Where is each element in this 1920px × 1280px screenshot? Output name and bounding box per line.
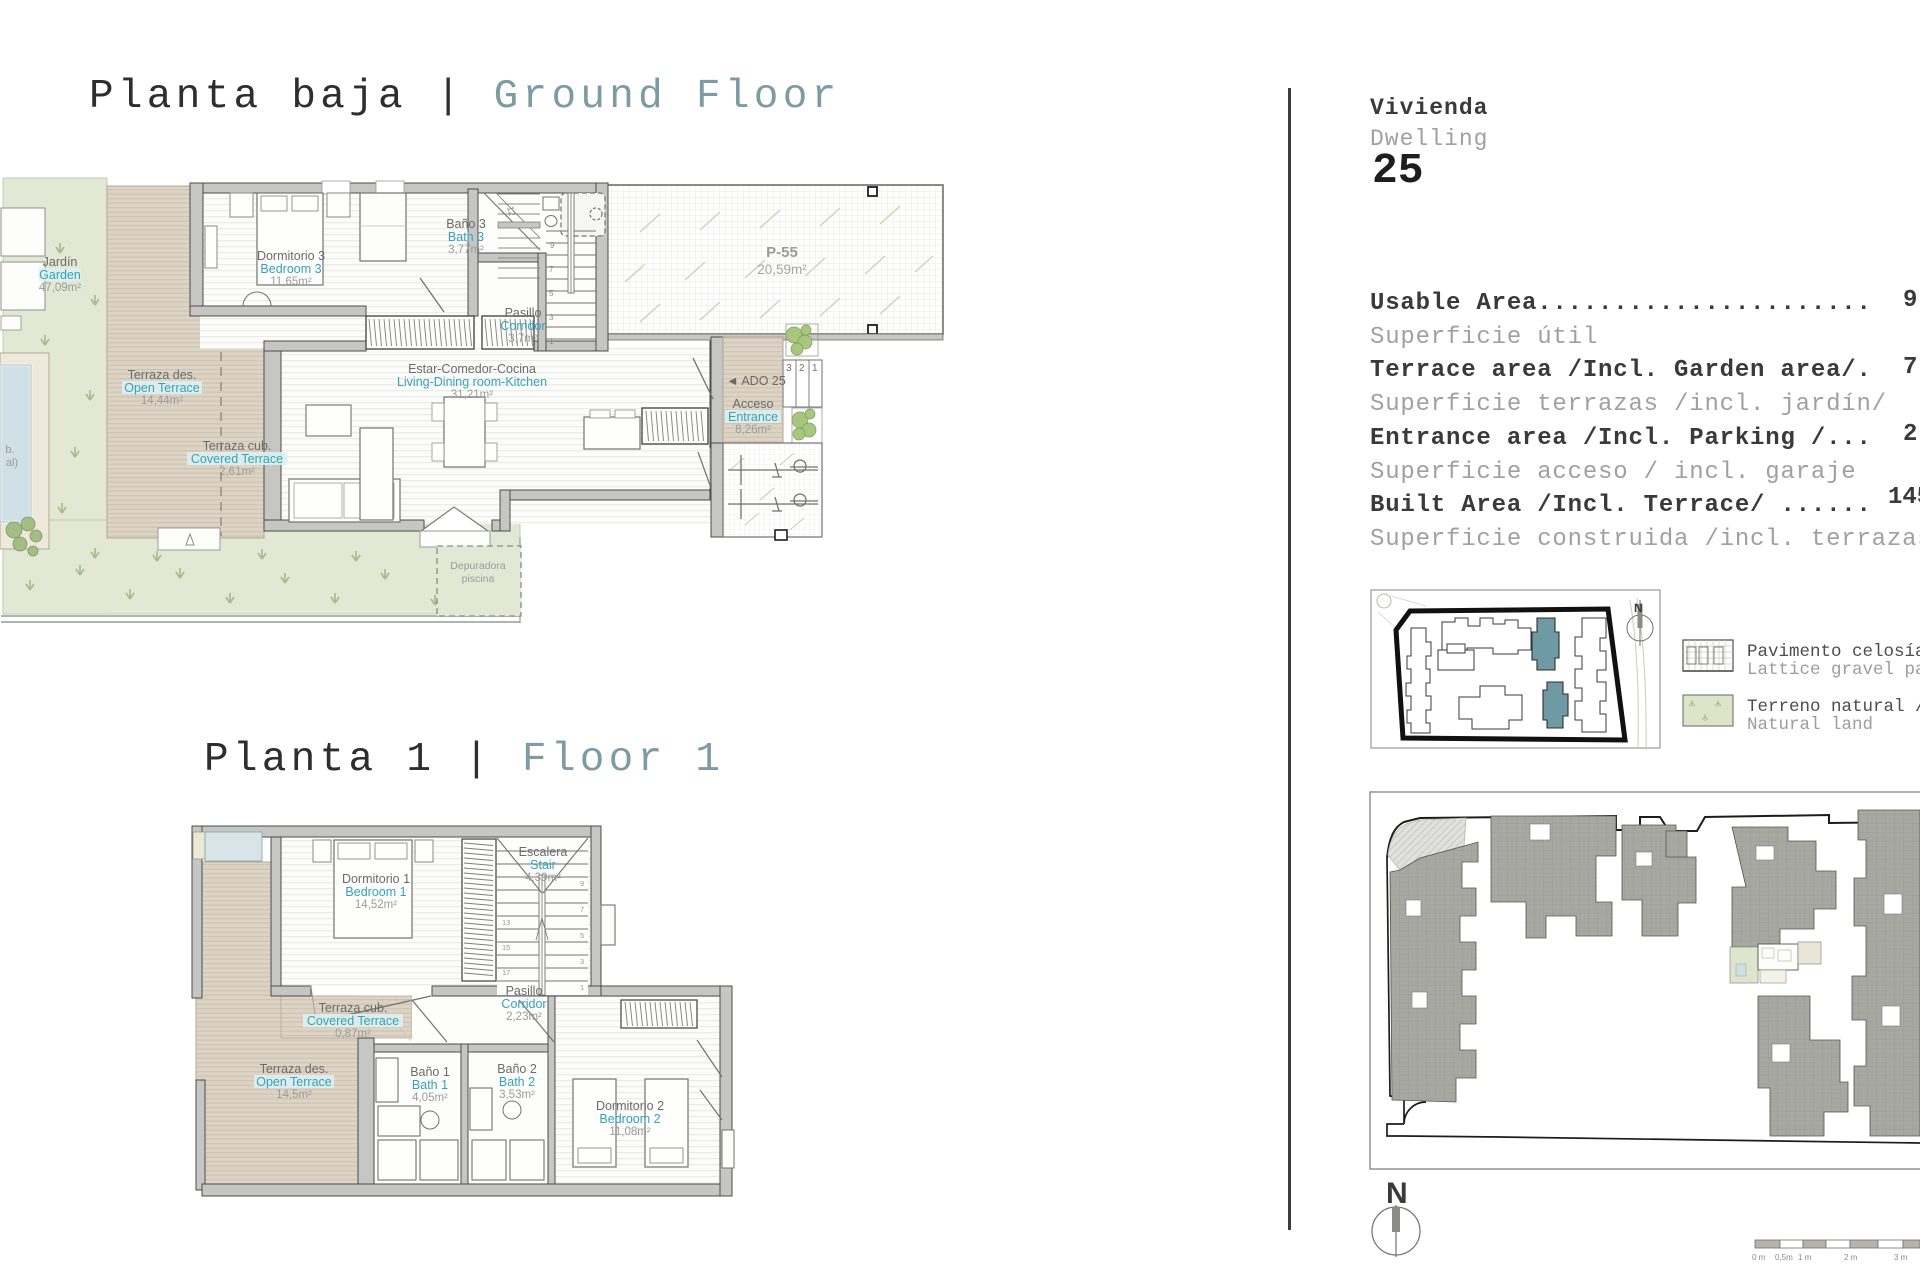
svg-text:Baño 2: Baño 2 [497, 1062, 537, 1076]
svg-text:Bedroom 2: Bedroom 2 [599, 1112, 660, 1126]
svg-text:al): al) [6, 457, 18, 469]
svg-text:Jardín: Jardín [43, 255, 78, 269]
svg-text:Entrance: Entrance [728, 410, 778, 424]
svg-text:Pasillo: Pasillo [505, 306, 542, 320]
svg-text:Acceso: Acceso [733, 397, 774, 411]
svg-text:14,44m²: 14,44m² [141, 395, 183, 407]
svg-text:3: 3 [786, 363, 792, 374]
svg-text:5: 5 [580, 931, 584, 940]
svg-text:1 m: 1 m [1798, 1253, 1812, 1262]
svg-text:14,52m²: 14,52m² [355, 899, 397, 911]
svg-text:Terraza des.: Terraza des. [128, 368, 197, 382]
svg-text:1: 1 [549, 337, 554, 346]
svg-text:3,77m²: 3,77m² [448, 244, 484, 256]
svg-text:Baño 1: Baño 1 [410, 1065, 450, 1079]
svg-text:N: N [1634, 601, 1643, 615]
svg-text:3: 3 [549, 313, 554, 322]
svg-text:Pasillo: Pasillo [506, 984, 543, 998]
svg-text:Stair: Stair [530, 858, 556, 872]
svg-text:7: 7 [580, 905, 584, 914]
svg-text:b.: b. [5, 444, 14, 456]
svg-text:Baño 3: Baño 3 [446, 217, 486, 231]
svg-text:0,5m: 0,5m [1775, 1253, 1793, 1262]
svg-text:17: 17 [502, 968, 510, 977]
svg-text:Open Terrace: Open Terrace [256, 1075, 332, 1089]
svg-text:◄ ADO 25: ◄ ADO 25 [726, 374, 786, 388]
svg-text:Corridor: Corridor [501, 997, 546, 1011]
svg-text:Open Terrace: Open Terrace [124, 381, 200, 395]
svg-text:9: 9 [550, 241, 555, 250]
svg-text:Bedroom 1: Bedroom 1 [345, 885, 406, 899]
svg-text:Covered Terrace: Covered Terrace [191, 452, 283, 466]
svg-text:Garden: Garden [39, 268, 81, 282]
svg-text:2,23m²: 2,23m² [506, 1011, 542, 1023]
svg-text:1: 1 [580, 983, 584, 992]
svg-text:9: 9 [580, 879, 584, 888]
svg-text:2,61m²: 2,61m² [219, 466, 255, 478]
svg-text:piscina: piscina [462, 573, 495, 585]
svg-text:4,05m²: 4,05m² [412, 1092, 448, 1104]
svg-text:P-55: P-55 [766, 244, 798, 261]
svg-text:Corridor: Corridor [500, 319, 545, 333]
svg-text:Terraza cub.: Terraza cub. [319, 1001, 388, 1015]
svg-text:Bedroom 3: Bedroom 3 [260, 262, 321, 276]
svg-text:Bath 1: Bath 1 [412, 1078, 448, 1092]
svg-text:8,26m²: 8,26m² [735, 424, 771, 436]
svg-text:7: 7 [549, 265, 554, 274]
svg-text:Living-Dining room-Kitchen: Living-Dining room-Kitchen [397, 375, 547, 389]
svg-text:14,5m²: 14,5m² [276, 1089, 312, 1101]
svg-text:Terraza cub.: Terraza cub. [203, 439, 272, 453]
svg-text:1: 1 [812, 363, 818, 374]
svg-text:3,7m²: 3,7m² [508, 333, 538, 345]
svg-text:3 m: 3 m [1894, 1253, 1908, 1262]
svg-text:11,65m²: 11,65m² [270, 276, 312, 288]
svg-text:Escalera: Escalera [519, 845, 568, 859]
svg-text:Depuradora: Depuradora [450, 560, 506, 572]
svg-text:Dormitorio 3: Dormitorio 3 [257, 249, 325, 263]
svg-text:Estar-Comedor-Cocina: Estar-Comedor-Cocina [408, 362, 536, 376]
svg-text:47,09m²: 47,09m² [39, 282, 81, 294]
svg-text:11,08m²: 11,08m² [609, 1126, 651, 1138]
svg-text:0,87m²: 0,87m² [335, 1028, 371, 1040]
svg-text:31,21m²: 31,21m² [451, 389, 493, 401]
svg-text:N: N [1386, 1177, 1408, 1210]
svg-text:15: 15 [502, 943, 510, 952]
svg-text:4,39m²: 4,39m² [525, 872, 561, 884]
svg-text:Bath 2: Bath 2 [499, 1075, 535, 1089]
svg-text:0 m: 0 m [1752, 1253, 1766, 1262]
svg-text:13: 13 [502, 918, 510, 927]
svg-text:Bath 3: Bath 3 [448, 230, 484, 244]
svg-text:20,59m²: 20,59m² [757, 262, 807, 277]
svg-text:2: 2 [799, 363, 805, 374]
svg-text:Dormitorio 2: Dormitorio 2 [596, 1099, 664, 1113]
svg-text:Terraza des.: Terraza des. [260, 1062, 329, 1076]
svg-text:3,53m²: 3,53m² [499, 1089, 535, 1101]
svg-text:Covered Terrace: Covered Terrace [307, 1014, 399, 1028]
svg-text:2 m: 2 m [1844, 1253, 1858, 1262]
svg-text:3: 3 [580, 957, 584, 966]
svg-text:Dormitorio 1: Dormitorio 1 [342, 872, 410, 886]
svg-text:5: 5 [549, 289, 554, 298]
